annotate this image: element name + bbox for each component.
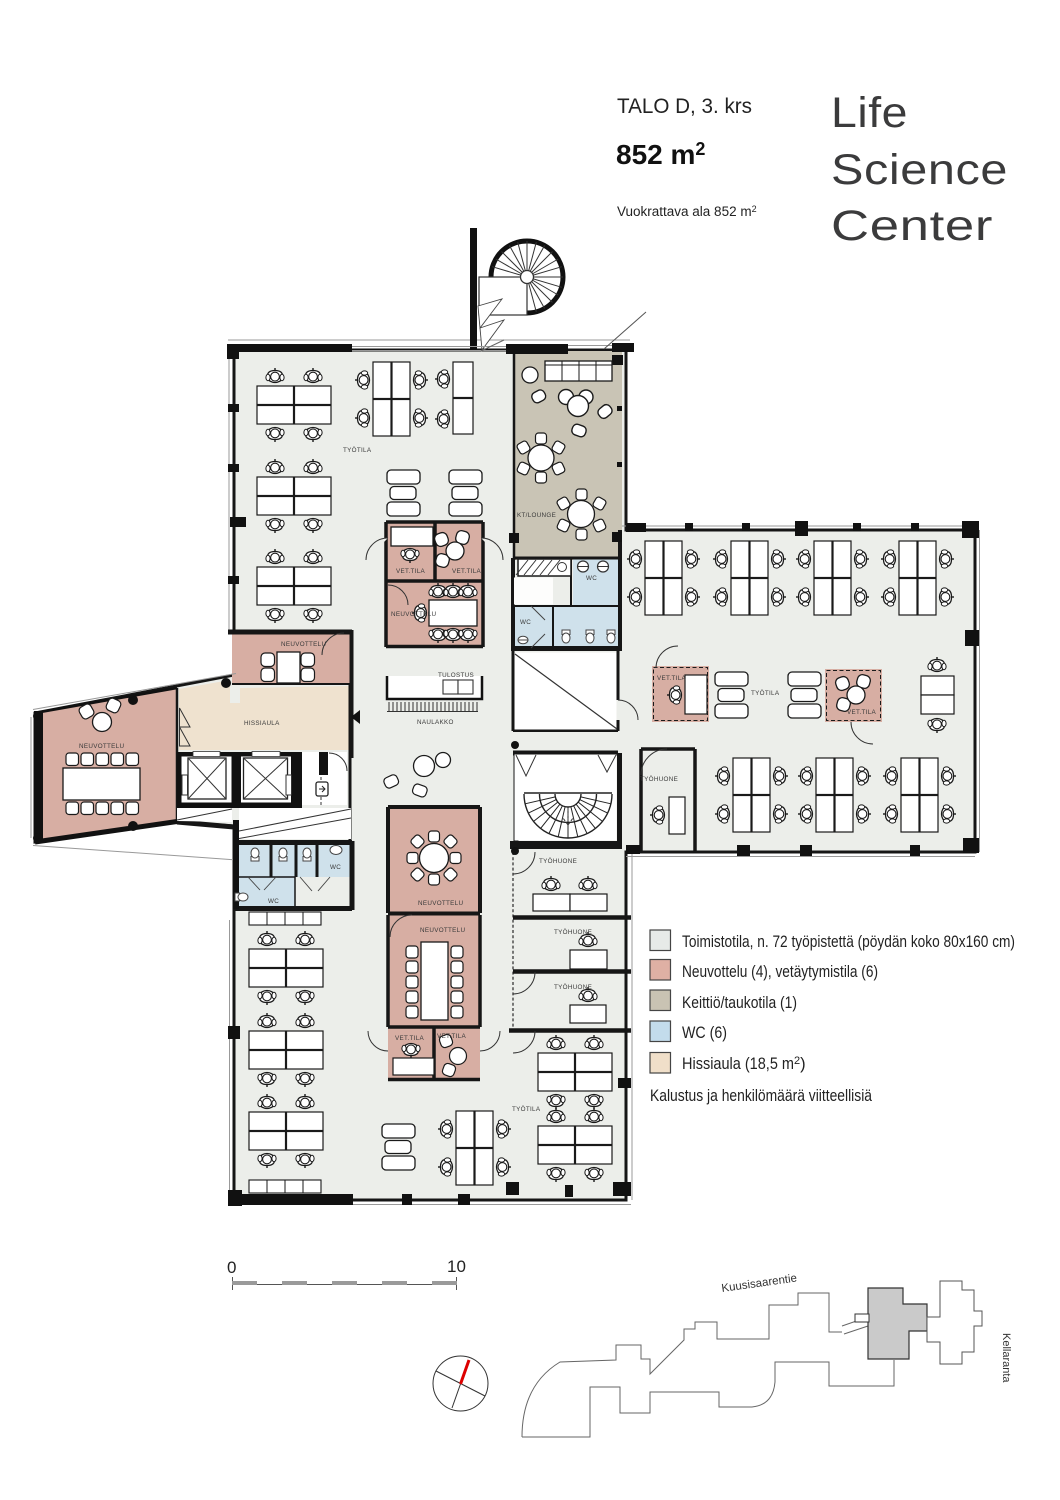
svg-text:KT/LOUNGE: KT/LOUNGE [517,512,556,519]
svg-text:WC: WC [330,864,341,871]
svg-text:TYÖHUONE: TYÖHUONE [554,983,592,991]
svg-text:852 m2: 852 m2 [616,139,705,170]
svg-text:TYÖTILA: TYÖTILA [751,689,780,697]
svg-text:WC: WC [520,619,531,626]
svg-text:NEUVOTTELU: NEUVOTTELU [418,900,463,907]
svg-text:Neuvottelu (4), vetäytymistila: Neuvottelu (4), vetäytymistila (6) [682,963,878,981]
svg-text:TYÖTILA: TYÖTILA [343,446,372,454]
svg-text:NEUVOTTELU: NEUVOTTELU [391,611,436,618]
svg-text:TYÖTILA: TYÖTILA [512,1105,541,1113]
svg-text:TYÖHUONE: TYÖHUONE [539,857,577,865]
svg-text:Kuusisaarentie: Kuusisaarentie [721,1272,798,1294]
svg-text:NEUVOTTELU: NEUVOTTELU [281,641,326,648]
svg-text:NEUVOTTELU: NEUVOTTELU [79,743,124,750]
svg-text:WC: WC [268,898,279,905]
svg-text:VET.TILA: VET.TILA [395,1035,424,1042]
svg-text:Vuokrattava ala 852 m2: Vuokrattava ala 852 m2 [617,204,757,219]
svg-text:VET.TILA: VET.TILA [437,1033,466,1040]
svg-text:VET.TILA: VET.TILA [452,568,481,575]
svg-text:TULOSTUS: TULOSTUS [438,672,474,679]
svg-text:Toimistotila, n. 72 työpistett: Toimistotila, n. 72 työpistettä (pöydän … [682,933,1015,951]
svg-text:Keittiö/taukotila (1): Keittiö/taukotila (1) [682,994,797,1012]
svg-text:TYÖHUONE: TYÖHUONE [640,775,678,783]
svg-text:Life: Life [831,90,908,137]
svg-text:HISSIAULA: HISSIAULA [244,720,280,727]
svg-text:10: 10 [447,1257,466,1276]
svg-text:Hissiaula (18,5 m2): Hissiaula (18,5 m2) [682,1055,806,1073]
svg-text:0: 0 [227,1258,236,1277]
svg-text:TALO D, 3. krs: TALO D, 3. krs [617,95,752,118]
svg-text:VET.TILA: VET.TILA [847,709,876,716]
svg-text:VET.TILA: VET.TILA [396,568,425,575]
svg-text:WC (6): WC (6) [682,1024,727,1042]
svg-text:Center: Center [831,203,993,250]
svg-text:VET.TILA: VET.TILA [657,675,686,682]
svg-text:WC: WC [586,575,597,582]
svg-text:Kalustus ja henkilömäärä viitt: Kalustus ja henkilömäärä viitteellisiä [650,1087,873,1105]
svg-text:NAULAKKO: NAULAKKO [417,719,454,726]
svg-text:NEUVOTTELU: NEUVOTTELU [420,927,465,934]
svg-text:Kellaranta: Kellaranta [1000,1333,1012,1383]
svg-text:TYÖHUONE: TYÖHUONE [554,928,592,936]
svg-text:Science: Science [831,147,1008,194]
